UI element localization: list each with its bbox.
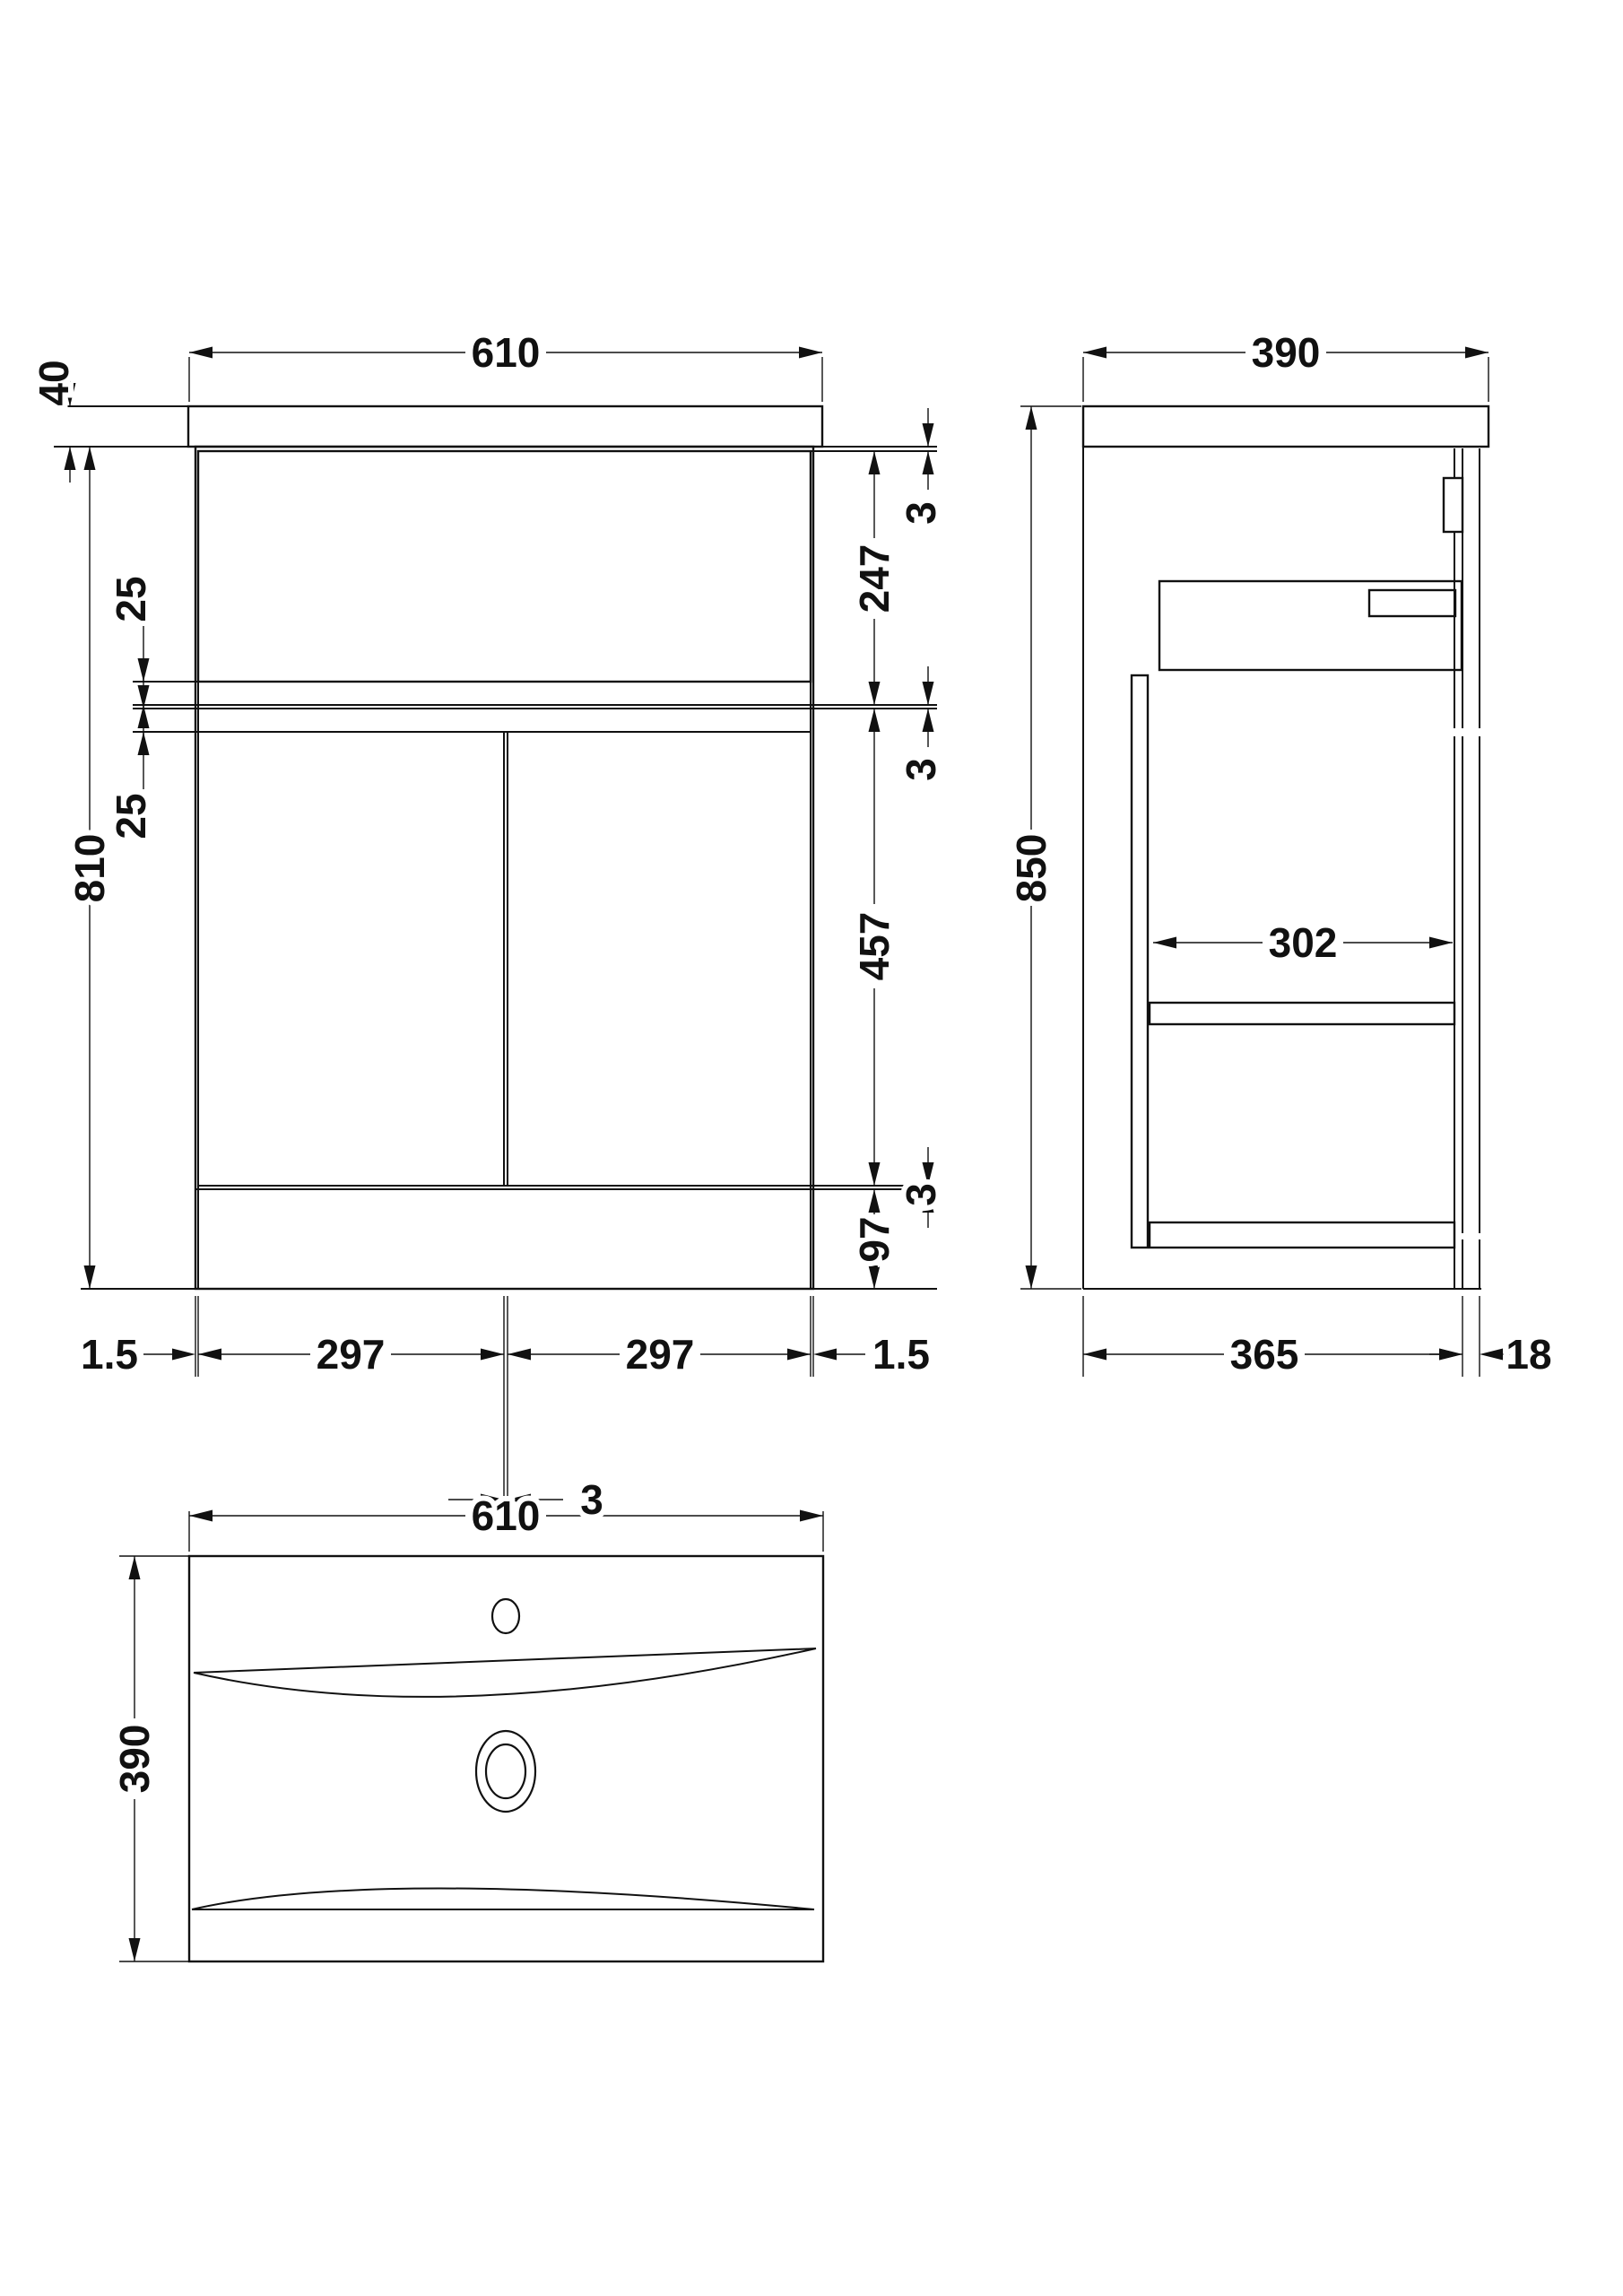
- front-elevation-view: [54, 347, 937, 1521]
- side-section-view: [1020, 347, 1515, 1378]
- dim-front-door-width-right: 297: [626, 1331, 695, 1378]
- dim-front-edge-gap-right: 1.5: [872, 1331, 930, 1378]
- dim-side-total-height: 850: [1008, 834, 1055, 903]
- dim-front-width: 610: [472, 329, 541, 376]
- dim-front-door-overlap: 25: [108, 793, 154, 839]
- dim-front-gap-top: 3: [898, 501, 944, 525]
- dim-front-gap-middle: 3: [898, 758, 944, 781]
- dim-side-depth: 390: [1252, 329, 1321, 376]
- plan-view: [119, 1510, 823, 1962]
- dim-front-door-width-left: 297: [317, 1331, 386, 1378]
- technical-drawing-canvas: 610 40 810 25 25 3 247 3 457 3 97 1.5 29…: [0, 0, 1623, 2296]
- dim-front-plinth-height: 97: [851, 1216, 898, 1262]
- dim-side-body-depth: 365: [1230, 1331, 1299, 1378]
- dim-front-drawer-overlap: 25: [108, 576, 154, 622]
- dim-side-internal-depth: 302: [1269, 919, 1338, 966]
- dim-front-gap-bottom: 3: [898, 1183, 944, 1206]
- dim-front-cabinet-height: 810: [66, 834, 113, 903]
- dim-front-center-gap: 3: [580, 1476, 603, 1523]
- dim-front-drawer-height: 247: [851, 544, 898, 613]
- dim-plan-depth: 390: [111, 1725, 158, 1794]
- dimension-labels: 610 40 810 25 25 3 247 3 457 3 97 1.5 29…: [30, 329, 1552, 1793]
- dim-plan-width: 610: [472, 1492, 541, 1539]
- dim-front-worktop-thickness: 40: [30, 360, 77, 405]
- dim-side-back-gap: 18: [1506, 1331, 1551, 1378]
- dim-front-door-height: 457: [851, 912, 898, 981]
- dim-front-edge-gap-left: 1.5: [81, 1331, 138, 1378]
